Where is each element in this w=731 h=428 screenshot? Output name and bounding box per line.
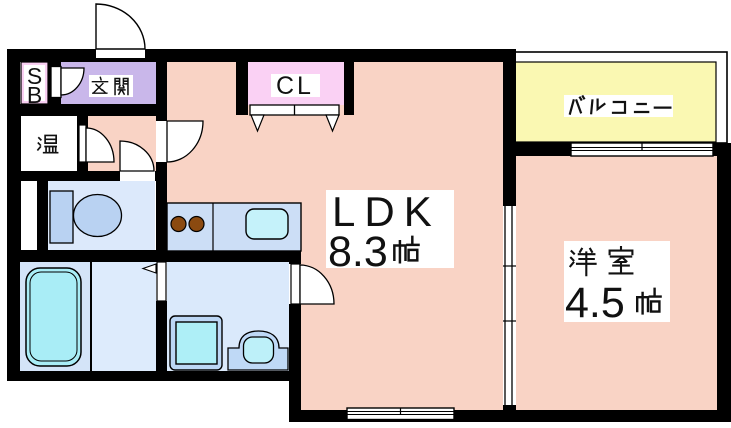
- svg-text:B: B: [27, 82, 42, 108]
- svg-text:4.5: 4.5: [565, 279, 625, 327]
- svg-text:8.3: 8.3: [328, 228, 388, 276]
- svg-text:CL: CL: [276, 72, 314, 100]
